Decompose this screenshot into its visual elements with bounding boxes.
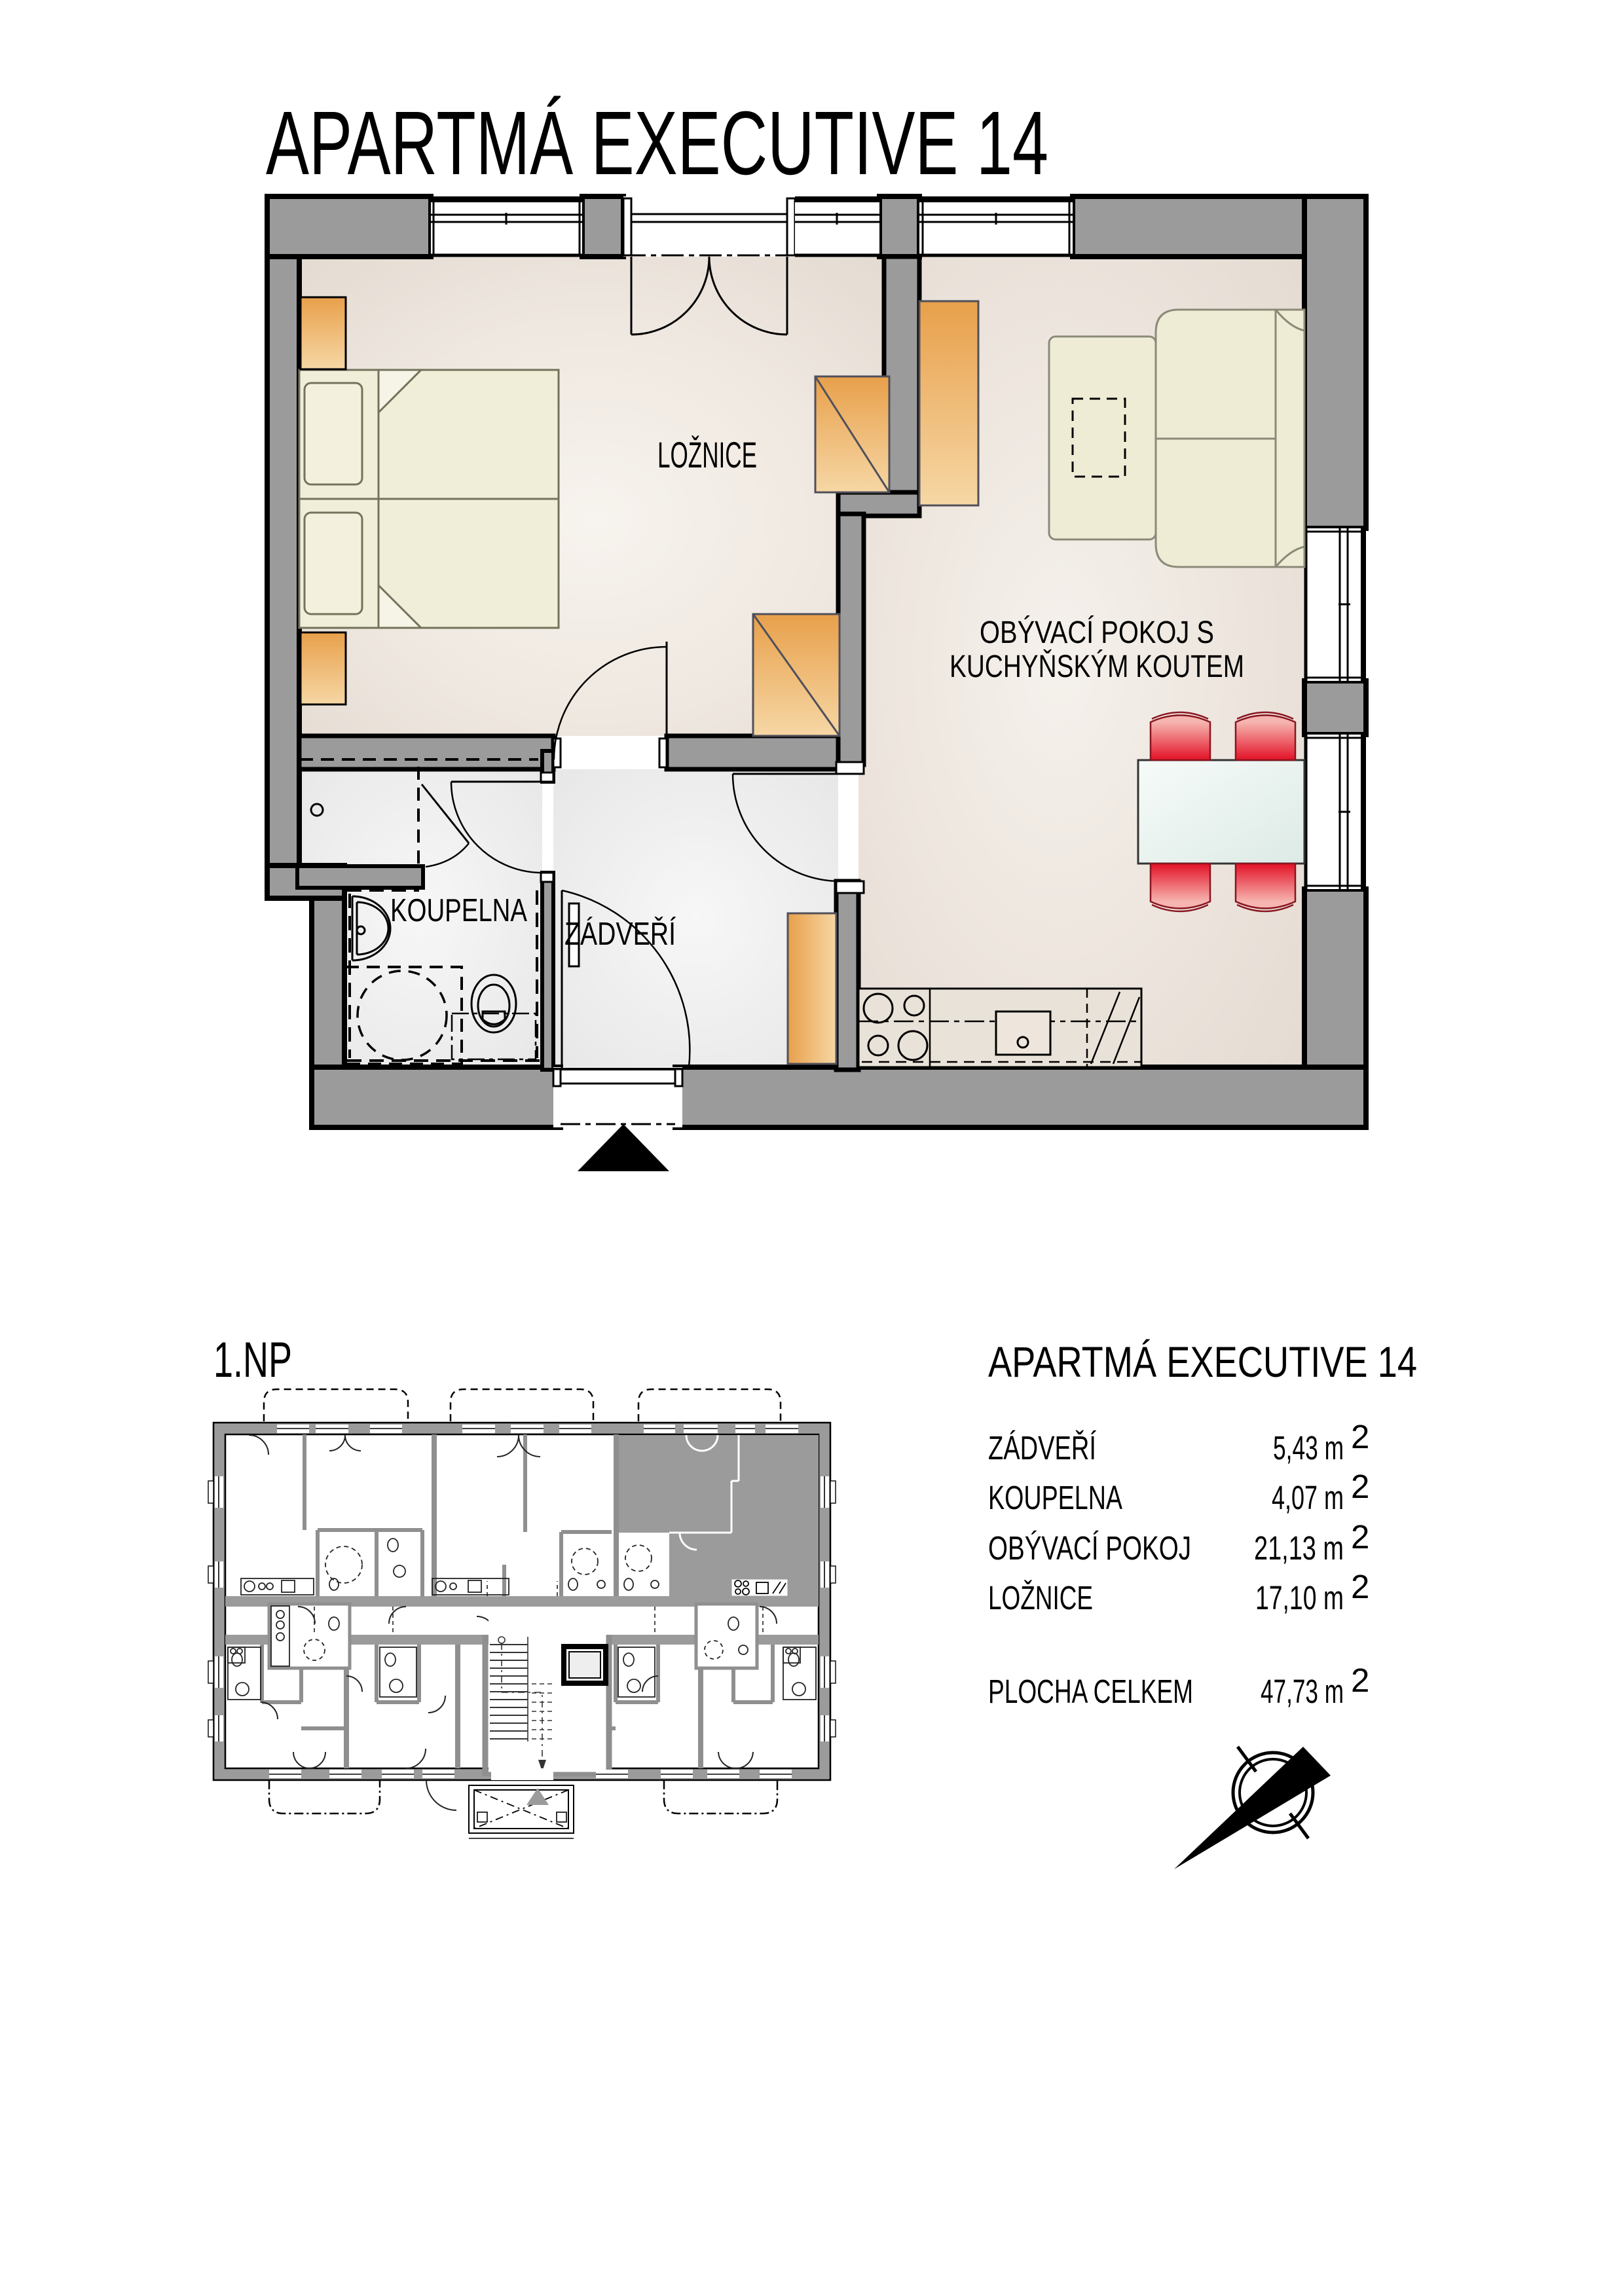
svg-text:21,13 m: 21,13 m bbox=[1254, 1529, 1344, 1567]
svg-text:KOUPELNA: KOUPELNA bbox=[988, 1479, 1122, 1516]
svg-text:APARTMÁ EXECUTIVE 14: APARTMÁ EXECUTIVE 14 bbox=[266, 93, 1048, 194]
svg-text:2: 2 bbox=[1351, 1568, 1369, 1605]
svg-text:1.NP: 1.NP bbox=[213, 1332, 292, 1388]
svg-text:47,73 m: 47,73 m bbox=[1261, 1673, 1344, 1710]
svg-text:APARTMÁ EXECUTIVE 14: APARTMÁ EXECUTIVE 14 bbox=[988, 1338, 1417, 1386]
svg-text:KOUPELNA: KOUPELNA bbox=[390, 893, 527, 928]
svg-text:5,43 m: 5,43 m bbox=[1273, 1429, 1344, 1467]
svg-text:4,07 m: 4,07 m bbox=[1272, 1479, 1344, 1516]
svg-text:2: 2 bbox=[1351, 1418, 1369, 1455]
svg-text:OBÝVACÍ POKOJ S: OBÝVACÍ POKOJ S bbox=[980, 615, 1214, 650]
svg-text:KUCHYŇSKÝM KOUTEM: KUCHYŇSKÝM KOUTEM bbox=[950, 649, 1244, 684]
svg-text:2: 2 bbox=[1351, 1518, 1369, 1556]
svg-text:OBÝVACÍ POKOJ: OBÝVACÍ POKOJ bbox=[988, 1529, 1191, 1567]
svg-text:ZÁDVEŘÍ: ZÁDVEŘÍ bbox=[564, 917, 676, 952]
svg-text:2: 2 bbox=[1351, 1468, 1369, 1505]
svg-text:ZÁDVEŘÍ: ZÁDVEŘÍ bbox=[988, 1429, 1097, 1467]
svg-text:2: 2 bbox=[1351, 1662, 1369, 1699]
svg-text:LOŽNICE: LOŽNICE bbox=[657, 434, 757, 475]
svg-text:LOŽNICE: LOŽNICE bbox=[988, 1579, 1093, 1616]
svg-text:PLOCHA CELKEM: PLOCHA CELKEM bbox=[988, 1673, 1193, 1710]
svg-text:17,10 m: 17,10 m bbox=[1255, 1579, 1344, 1616]
